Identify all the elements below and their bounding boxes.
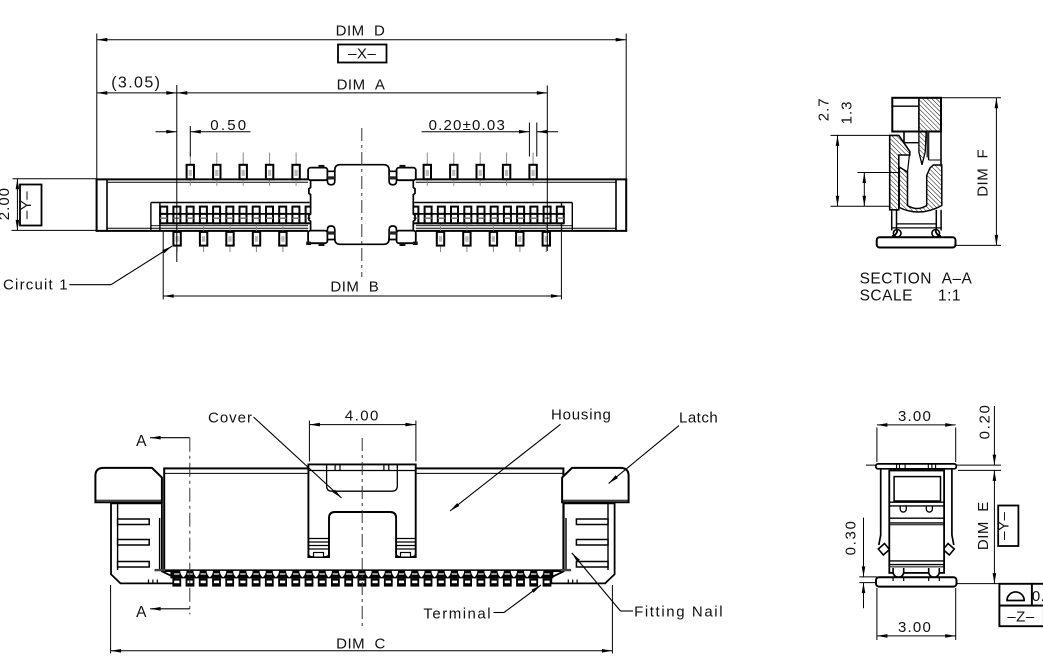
svg-text:Circuit 1: Circuit 1 bbox=[3, 277, 69, 294]
svg-text:–Z–: –Z– bbox=[1007, 609, 1035, 626]
svg-text:Housing: Housing bbox=[551, 407, 612, 424]
svg-text:3.00: 3.00 bbox=[898, 619, 932, 636]
svg-text:2.00: 2.00 bbox=[0, 187, 13, 220]
svg-text:0.20: 0.20 bbox=[977, 403, 994, 439]
svg-text:0.50: 0.50 bbox=[210, 117, 248, 134]
svg-text:SECTION A–A: SECTION A–A bbox=[860, 271, 973, 288]
svg-text:–X–: –X– bbox=[348, 45, 376, 62]
svg-text:Cover: Cover bbox=[208, 410, 253, 427]
svg-text:Fitting Nail: Fitting Nail bbox=[634, 604, 724, 621]
svg-text:A: A bbox=[136, 433, 147, 450]
svg-text:1.3: 1.3 bbox=[839, 100, 856, 124]
svg-text:1:1: 1:1 bbox=[938, 288, 961, 305]
svg-text:0.20±0.03: 0.20±0.03 bbox=[429, 117, 506, 134]
svg-text:SCALE: SCALE bbox=[860, 288, 913, 305]
svg-text:–Y–: –Y– bbox=[996, 511, 1013, 539]
svg-text:2.7: 2.7 bbox=[816, 97, 833, 121]
svg-text:–Y–: –Y– bbox=[18, 191, 35, 219]
svg-text:3.00: 3.00 bbox=[898, 408, 932, 425]
svg-text:DIM A: DIM A bbox=[337, 77, 386, 94]
svg-text:DIM E: DIM E bbox=[975, 501, 992, 550]
svg-text:DIM C: DIM C bbox=[336, 635, 386, 652]
svg-text:Terminal: Terminal bbox=[423, 606, 492, 623]
svg-text:(3.05): (3.05) bbox=[111, 75, 161, 92]
svg-text:A: A bbox=[136, 604, 147, 621]
svg-text:0.30: 0.30 bbox=[842, 519, 859, 555]
svg-text:0.1: 0.1 bbox=[1032, 588, 1043, 605]
svg-text:4.00: 4.00 bbox=[345, 408, 380, 425]
svg-text:DIM B: DIM B bbox=[330, 279, 379, 296]
svg-text:DIM F: DIM F bbox=[975, 149, 992, 197]
svg-text:Latch: Latch bbox=[679, 410, 718, 427]
svg-text:DIM D: DIM D bbox=[336, 22, 386, 39]
